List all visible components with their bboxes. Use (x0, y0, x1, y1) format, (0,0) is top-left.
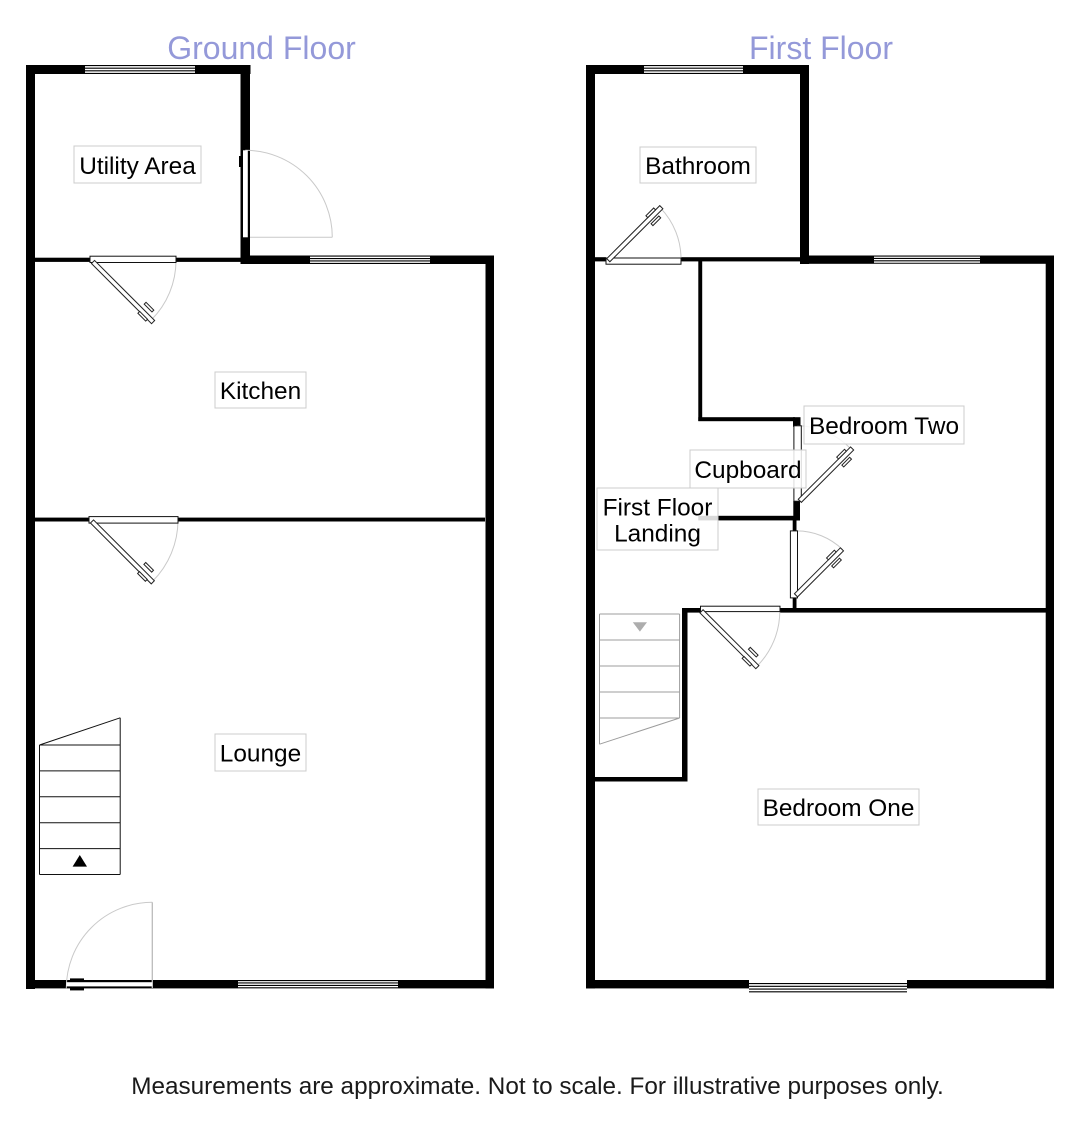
svg-text:Bedroom One: Bedroom One (763, 795, 915, 822)
svg-text:Measurements are approximate.: Measurements are approximate. Not to sca… (131, 1073, 944, 1100)
svg-text:Cupboard: Cupboard (694, 457, 801, 484)
svg-text:First Floor: First Floor (603, 495, 713, 522)
svg-text:Ground Floor: Ground Floor (167, 30, 356, 66)
svg-text:Kitchen: Kitchen (220, 378, 301, 405)
svg-text:Bathroom: Bathroom (645, 153, 751, 180)
svg-text:Lounge: Lounge (220, 741, 301, 768)
svg-text:First Floor: First Floor (749, 30, 893, 66)
svg-text:Utility Area: Utility Area (79, 153, 196, 180)
svg-text:Bedroom Two: Bedroom Two (809, 413, 959, 440)
svg-text:Landing: Landing (614, 521, 701, 548)
